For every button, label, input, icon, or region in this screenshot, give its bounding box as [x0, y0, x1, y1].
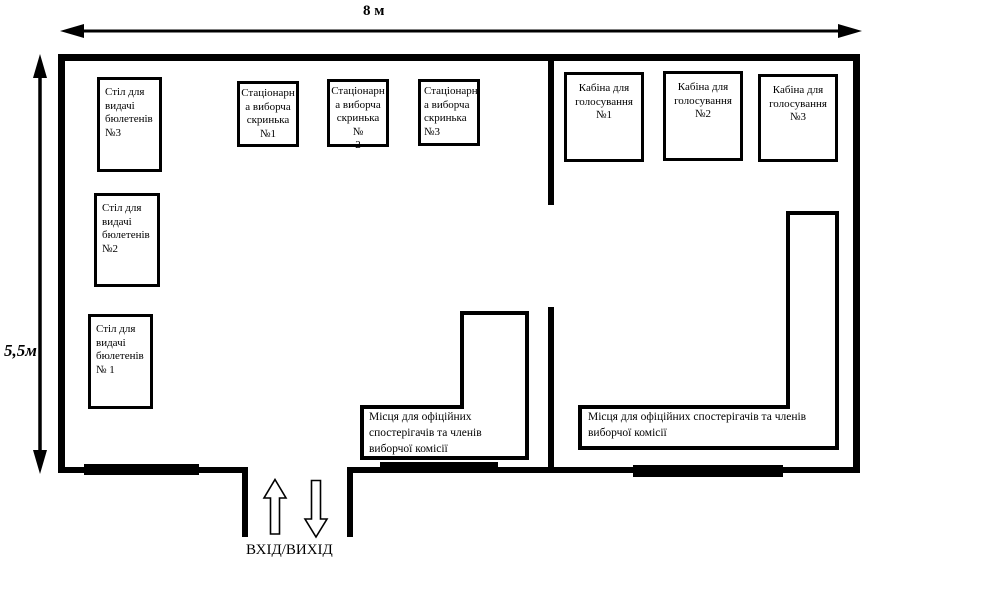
polling-station-floor-plan: 8 м 5,5м Стіл для видачі бюлетенів №3 Ст…: [0, 0, 985, 595]
ballot-table-2: Стіл для видачі бюлетенів №2: [94, 193, 160, 287]
wall-left: [58, 54, 65, 473]
stationary-ballot-box-3-label: Стаціонарн: [424, 85, 476, 99]
ballot-table-2-label: Стіл для: [102, 202, 155, 216]
stationary-ballot-box-2: Стаціонарн а виборча скринька № 2: [327, 79, 389, 147]
stationary-ballot-box-2-label: Стаціонарн: [331, 85, 385, 99]
voting-booth-1-label: Кабіна для: [569, 82, 639, 96]
entrance-jamb-right: [347, 467, 353, 537]
observers-area-right-label: Місця для офіційних спостерігачів та чле…: [588, 409, 833, 441]
height-dimension-label: 5,5м: [4, 341, 37, 361]
ballot-table-1: Стіл для видачі бюлетенів № 1: [88, 314, 153, 409]
entrance-label: ВХІД/ВИХІД: [246, 542, 333, 559]
width-dimension-label: 8 м: [363, 3, 384, 20]
divider-wall-bottom: [548, 307, 554, 473]
ballot-table-3: Стіл для видачі бюлетенів №3: [97, 77, 162, 172]
ballot-table-1-label: Стіл для: [96, 323, 148, 337]
stationary-ballot-box-1: Стаціонарн а виборча скринька №1: [237, 81, 299, 147]
divider-wall-top: [548, 54, 554, 205]
bottom-wall-barrier-3: [633, 465, 783, 477]
bottom-wall-barrier-2: [380, 462, 498, 473]
width-dimension-arrow: [58, 22, 864, 40]
ballot-table-3-label: Стіл для: [105, 86, 157, 100]
height-dimension-arrow: [31, 52, 49, 476]
entrance-jamb-left: [242, 467, 248, 537]
wall-top: [58, 54, 860, 61]
entrance-arrow-out-icon: [303, 479, 329, 539]
voting-booth-3: Кабіна для голосування №3: [758, 74, 838, 162]
entrance-arrow-in-icon: [262, 478, 288, 536]
voting-booth-2: Кабіна для голосування №2: [663, 71, 743, 161]
wall-right: [853, 54, 860, 473]
bottom-wall-barrier-1: [84, 464, 199, 475]
voting-booth-1: Кабіна для голосування №1: [564, 72, 644, 162]
stationary-ballot-box-1-label: Стаціонарн: [241, 87, 295, 101]
voting-booth-2-label: Кабіна для: [668, 81, 738, 95]
observers-area-left-label: Місця для офіційних спостерігачів та чле…: [369, 409, 521, 457]
stationary-ballot-box-3: Стаціонарн а виборча скринька №3: [418, 79, 480, 146]
voting-booth-3-label: Кабіна для: [763, 84, 833, 98]
